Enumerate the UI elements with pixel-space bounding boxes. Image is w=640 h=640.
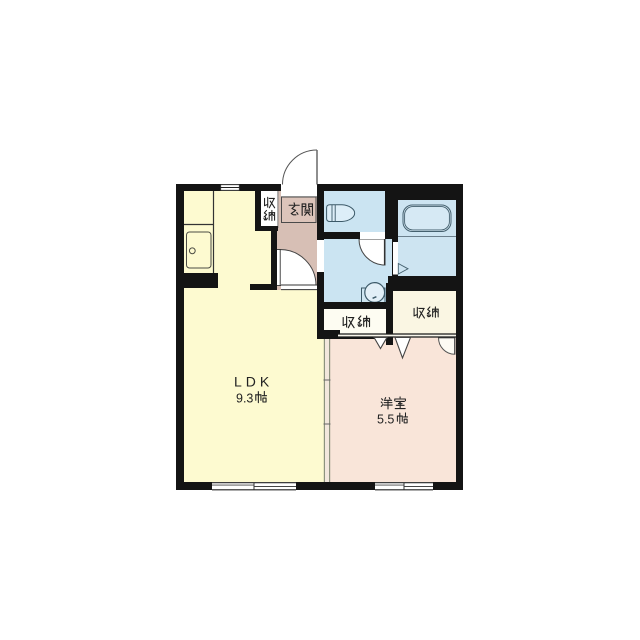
svg-text:LDK: LDK bbox=[234, 374, 273, 390]
svg-text:9.3: 9.3 bbox=[236, 392, 253, 406]
svg-text:5.5: 5.5 bbox=[377, 413, 394, 427]
